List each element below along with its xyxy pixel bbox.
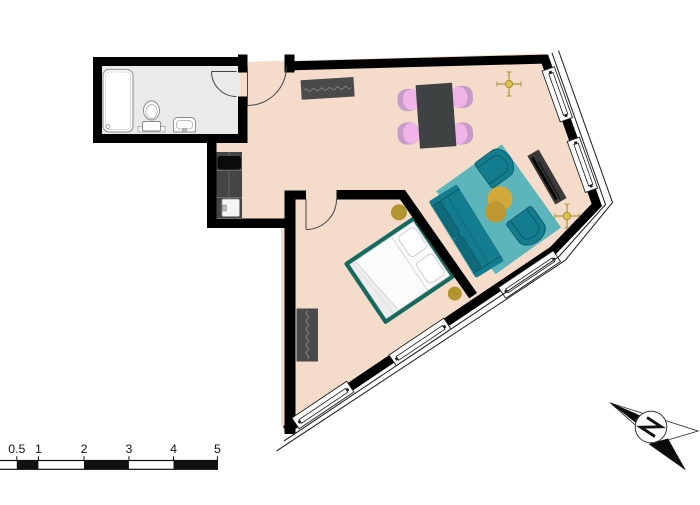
svg-text:2: 2 — [81, 442, 88, 456]
svg-text:5: 5 — [214, 442, 221, 456]
svg-text:4: 4 — [170, 442, 177, 456]
svg-text:0.5: 0.5 — [8, 442, 25, 456]
svg-text:3: 3 — [125, 442, 132, 456]
svg-text:1: 1 — [35, 442, 42, 456]
